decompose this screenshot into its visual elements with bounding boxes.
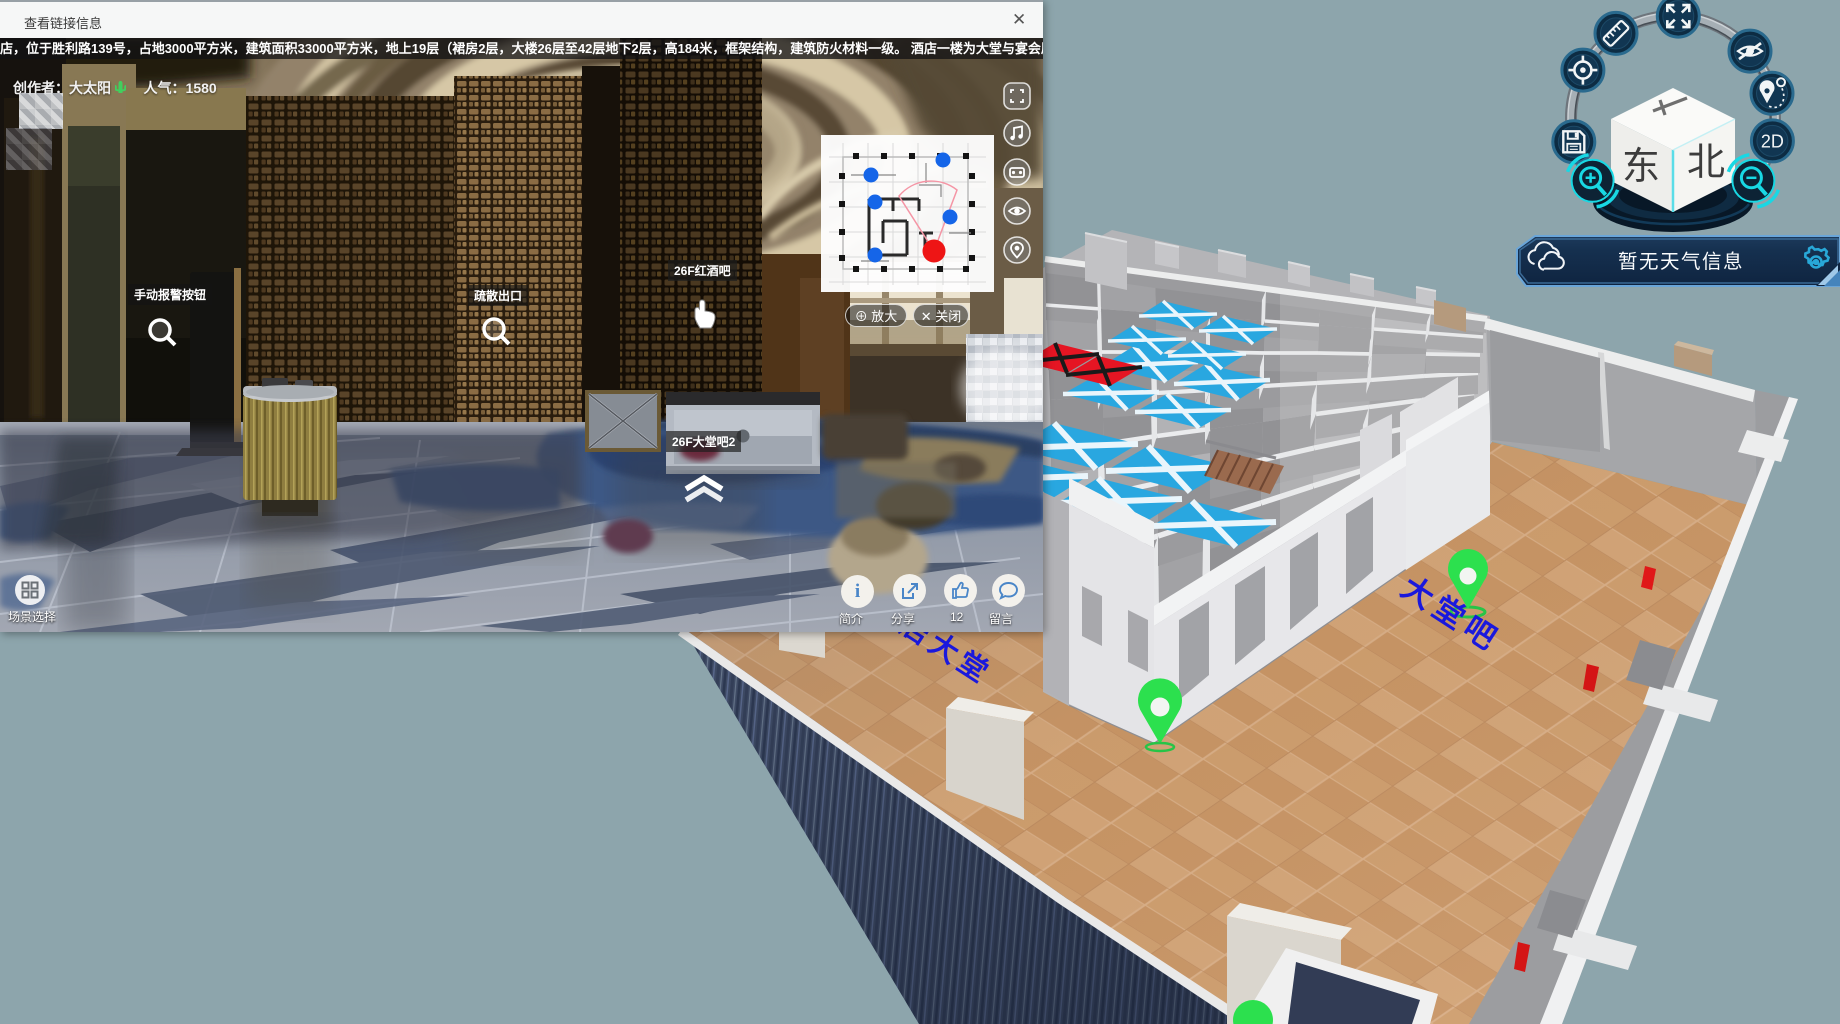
svg-text:东: 东 <box>1622 146 1660 188</box>
svg-text:北: 北 <box>1687 142 1725 184</box>
svg-text:暂无天气信息: 暂无天气信息 <box>1618 251 1744 273</box>
svg-text:2D: 2D <box>1761 131 1784 151</box>
